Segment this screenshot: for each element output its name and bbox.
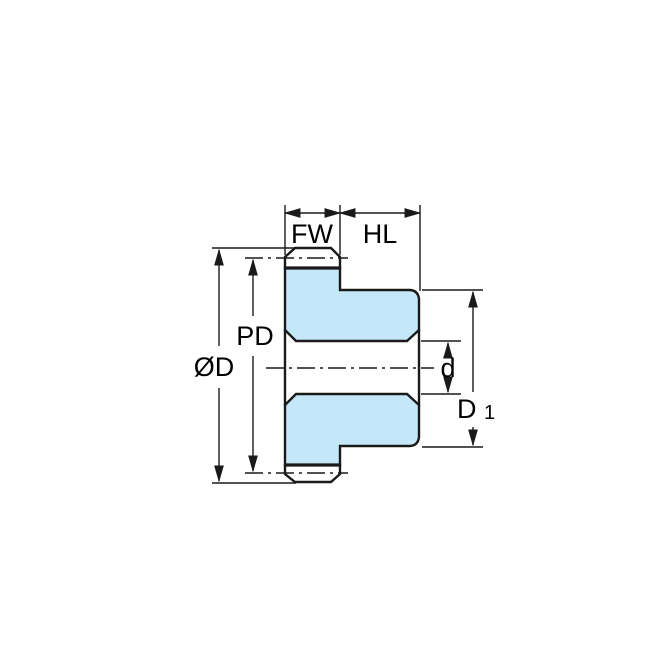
- hl-label: HL: [363, 219, 398, 249]
- gear-upper-body: [285, 268, 419, 341]
- gear-lower-body: [285, 394, 419, 465]
- d-label: d: [440, 353, 455, 383]
- od-label: ØD: [194, 352, 235, 382]
- fw-label: FW: [291, 219, 333, 249]
- d1-label-base: D: [457, 394, 477, 424]
- gear-technical-drawing: FW HL PD ØD d D 1: [0, 0, 670, 670]
- gear-drawing-page: FW HL PD ØD d D 1: [0, 0, 670, 670]
- d1-label-subscript: 1: [484, 402, 495, 424]
- d1-label: D 1: [457, 394, 495, 424]
- pd-label: PD: [236, 321, 274, 351]
